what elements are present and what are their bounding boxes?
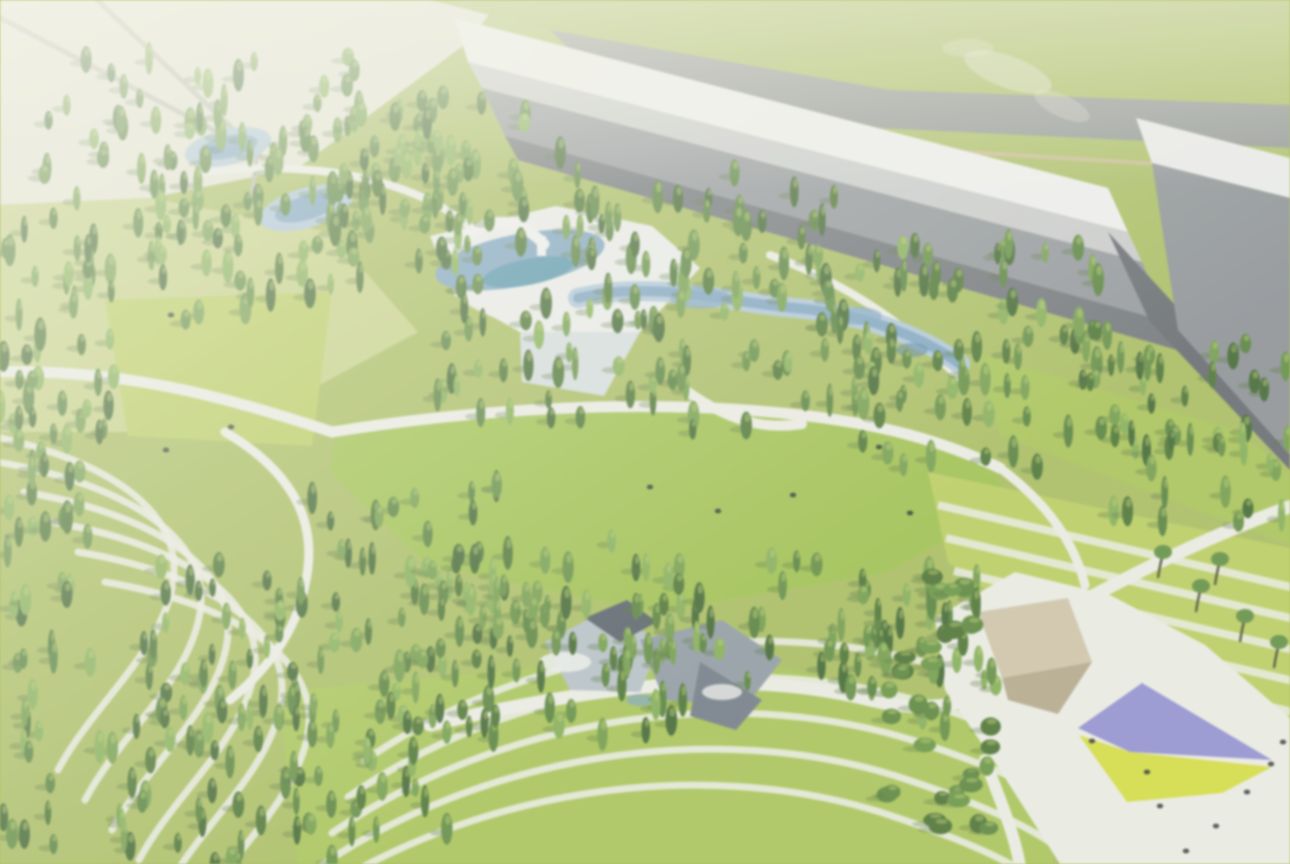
- park-aerial-rendering: [0, 0, 1290, 864]
- atmosphere-overlay: [0, 0, 1290, 864]
- warm-tint: [0, 0, 1290, 864]
